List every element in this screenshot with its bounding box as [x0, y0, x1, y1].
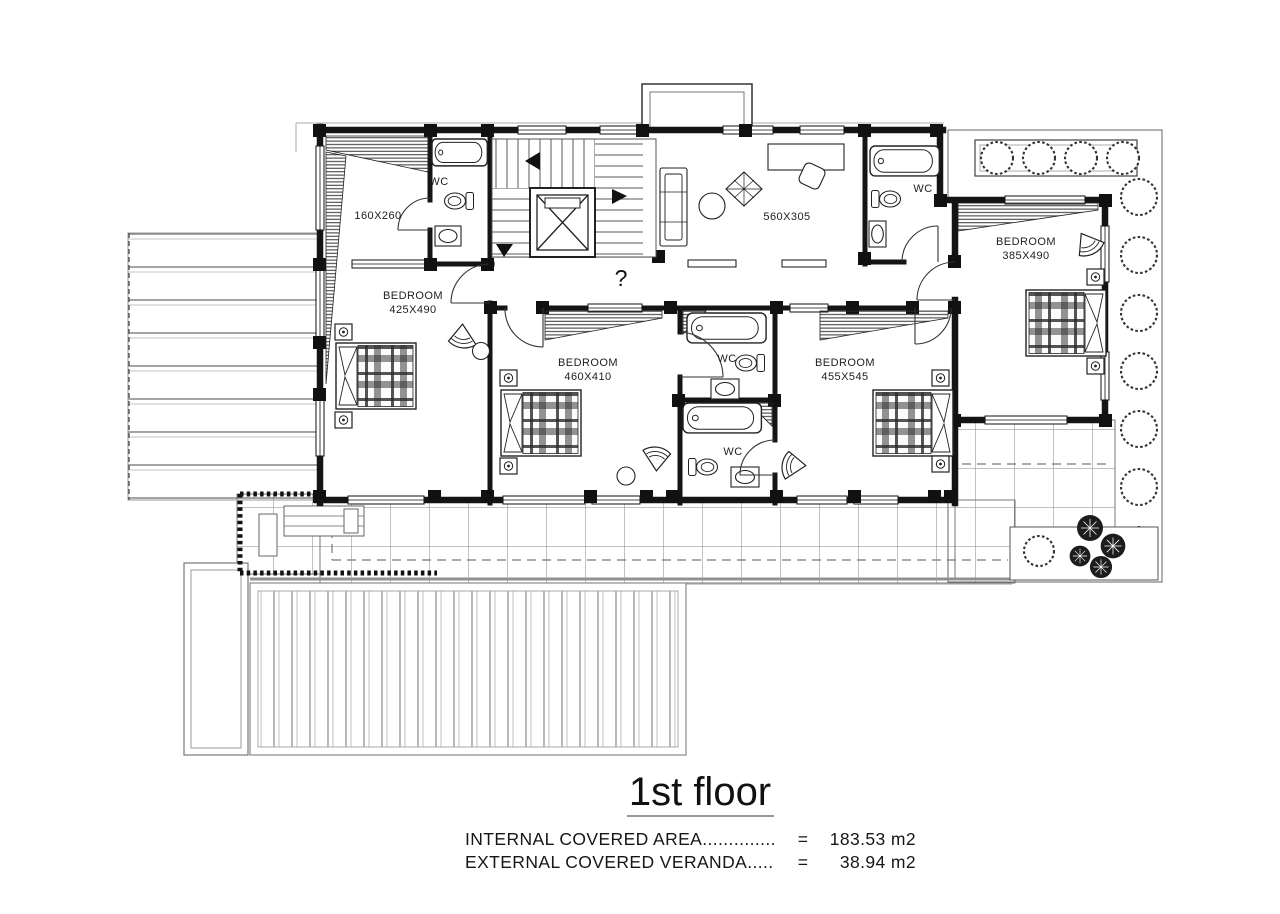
bed-icon [873, 390, 953, 456]
stairs-icon [492, 139, 595, 188]
window [592, 496, 640, 504]
stool-icon [473, 343, 490, 360]
window [518, 126, 566, 134]
sink-icon [869, 221, 886, 247]
window [316, 146, 324, 230]
bathtub-icon [870, 146, 939, 176]
window [348, 496, 424, 504]
bush-plant-icon [1107, 142, 1139, 174]
toilet-icon [872, 191, 901, 208]
nightstand-icon [335, 324, 352, 340]
dark-plant-icon [1101, 534, 1126, 559]
nightstand-icon [500, 370, 517, 386]
bedroom1-name-label: BEDROOM [383, 290, 443, 302]
internal-area-equals: = [798, 829, 809, 849]
bathtub-icon [432, 139, 487, 166]
bush-plant-icon [981, 142, 1013, 174]
planter-top [975, 140, 1139, 176]
bedroom2-dim-label: 460X410 [564, 371, 611, 383]
left-terrace-deck [128, 233, 320, 500]
stair-question-mark: ? [615, 265, 628, 291]
bush-plant-icon [1065, 142, 1097, 174]
sink-icon [711, 379, 739, 399]
nightstand-icon [932, 370, 949, 386]
sofa-icon [660, 168, 687, 246]
window [503, 496, 585, 504]
dark-plant-icon [1070, 546, 1091, 567]
bedroom3-name-label: BEDROOM [815, 357, 875, 369]
bedroom4-dim-label: 385X490 [1002, 250, 1049, 262]
dark-plant-icon [1090, 556, 1112, 578]
bed-icon [336, 343, 416, 409]
external-veranda-equals: = [798, 852, 809, 872]
external-veranda-value: 38.94 m2 [840, 852, 916, 872]
floor-plan-page: 160X260 WC BEDROOM 425X490 560X305 WC BE… [0, 0, 1280, 914]
bed-icon [1026, 290, 1106, 356]
bed-icon [501, 390, 581, 456]
wc-label: WC [913, 183, 932, 195]
page-title: 1st floor [629, 770, 771, 814]
window [316, 268, 324, 338]
window [352, 260, 426, 268]
nightstand-icon [500, 458, 517, 474]
elevator-icon [530, 188, 595, 257]
nightstand-icon [1087, 269, 1104, 285]
lower-deck [250, 583, 686, 755]
wc-label: WC [723, 446, 742, 458]
window [316, 396, 324, 456]
toilet-icon [689, 459, 718, 476]
wc-label: WC [717, 353, 736, 365]
stairwell [492, 139, 656, 257]
sink-icon [731, 467, 759, 487]
bedroom1-dim-label: 425X490 [389, 304, 436, 316]
internal-area-label: INTERNAL COVERED AREA.............. [465, 829, 776, 849]
floor-plan-canvas: 160X260 WC BEDROOM 425X490 560X305 WC BE… [0, 0, 1280, 914]
sink-icon [435, 226, 461, 246]
bathtub-icon [687, 313, 766, 343]
window [985, 416, 1067, 424]
left-walkway [184, 563, 248, 755]
bush-plant-icon [1024, 536, 1054, 566]
round-table-icon [699, 193, 725, 219]
toilet-icon [445, 193, 474, 210]
footer: 1st floor INTERNAL COVERED AREA.........… [465, 770, 916, 872]
window [797, 496, 847, 504]
bathtub-icon [683, 403, 761, 433]
bedroom3-dim-label: 455X545 [821, 371, 868, 383]
toilet-icon [736, 355, 765, 372]
wc-label: WC [429, 176, 448, 188]
entrance-porch [642, 84, 752, 132]
dark-plant-icon [1077, 515, 1103, 541]
window [800, 126, 844, 134]
nightstand-icon [932, 456, 949, 472]
bush-plant-icon [1023, 142, 1055, 174]
external-veranda-label: EXTERNAL COVERED VERANDA..... [465, 852, 774, 872]
hall-dim-label: 560X305 [763, 211, 810, 223]
bedroom2-name-label: BEDROOM [558, 357, 618, 369]
internal-area-value: 183.53 m2 [830, 829, 916, 849]
nightstand-icon [335, 412, 352, 428]
nightstand-icon [1087, 358, 1104, 374]
stool-icon [617, 467, 635, 485]
bedroom4-name-label: BEDROOM [996, 236, 1056, 248]
dressing-dim-label: 160X260 [354, 210, 401, 222]
